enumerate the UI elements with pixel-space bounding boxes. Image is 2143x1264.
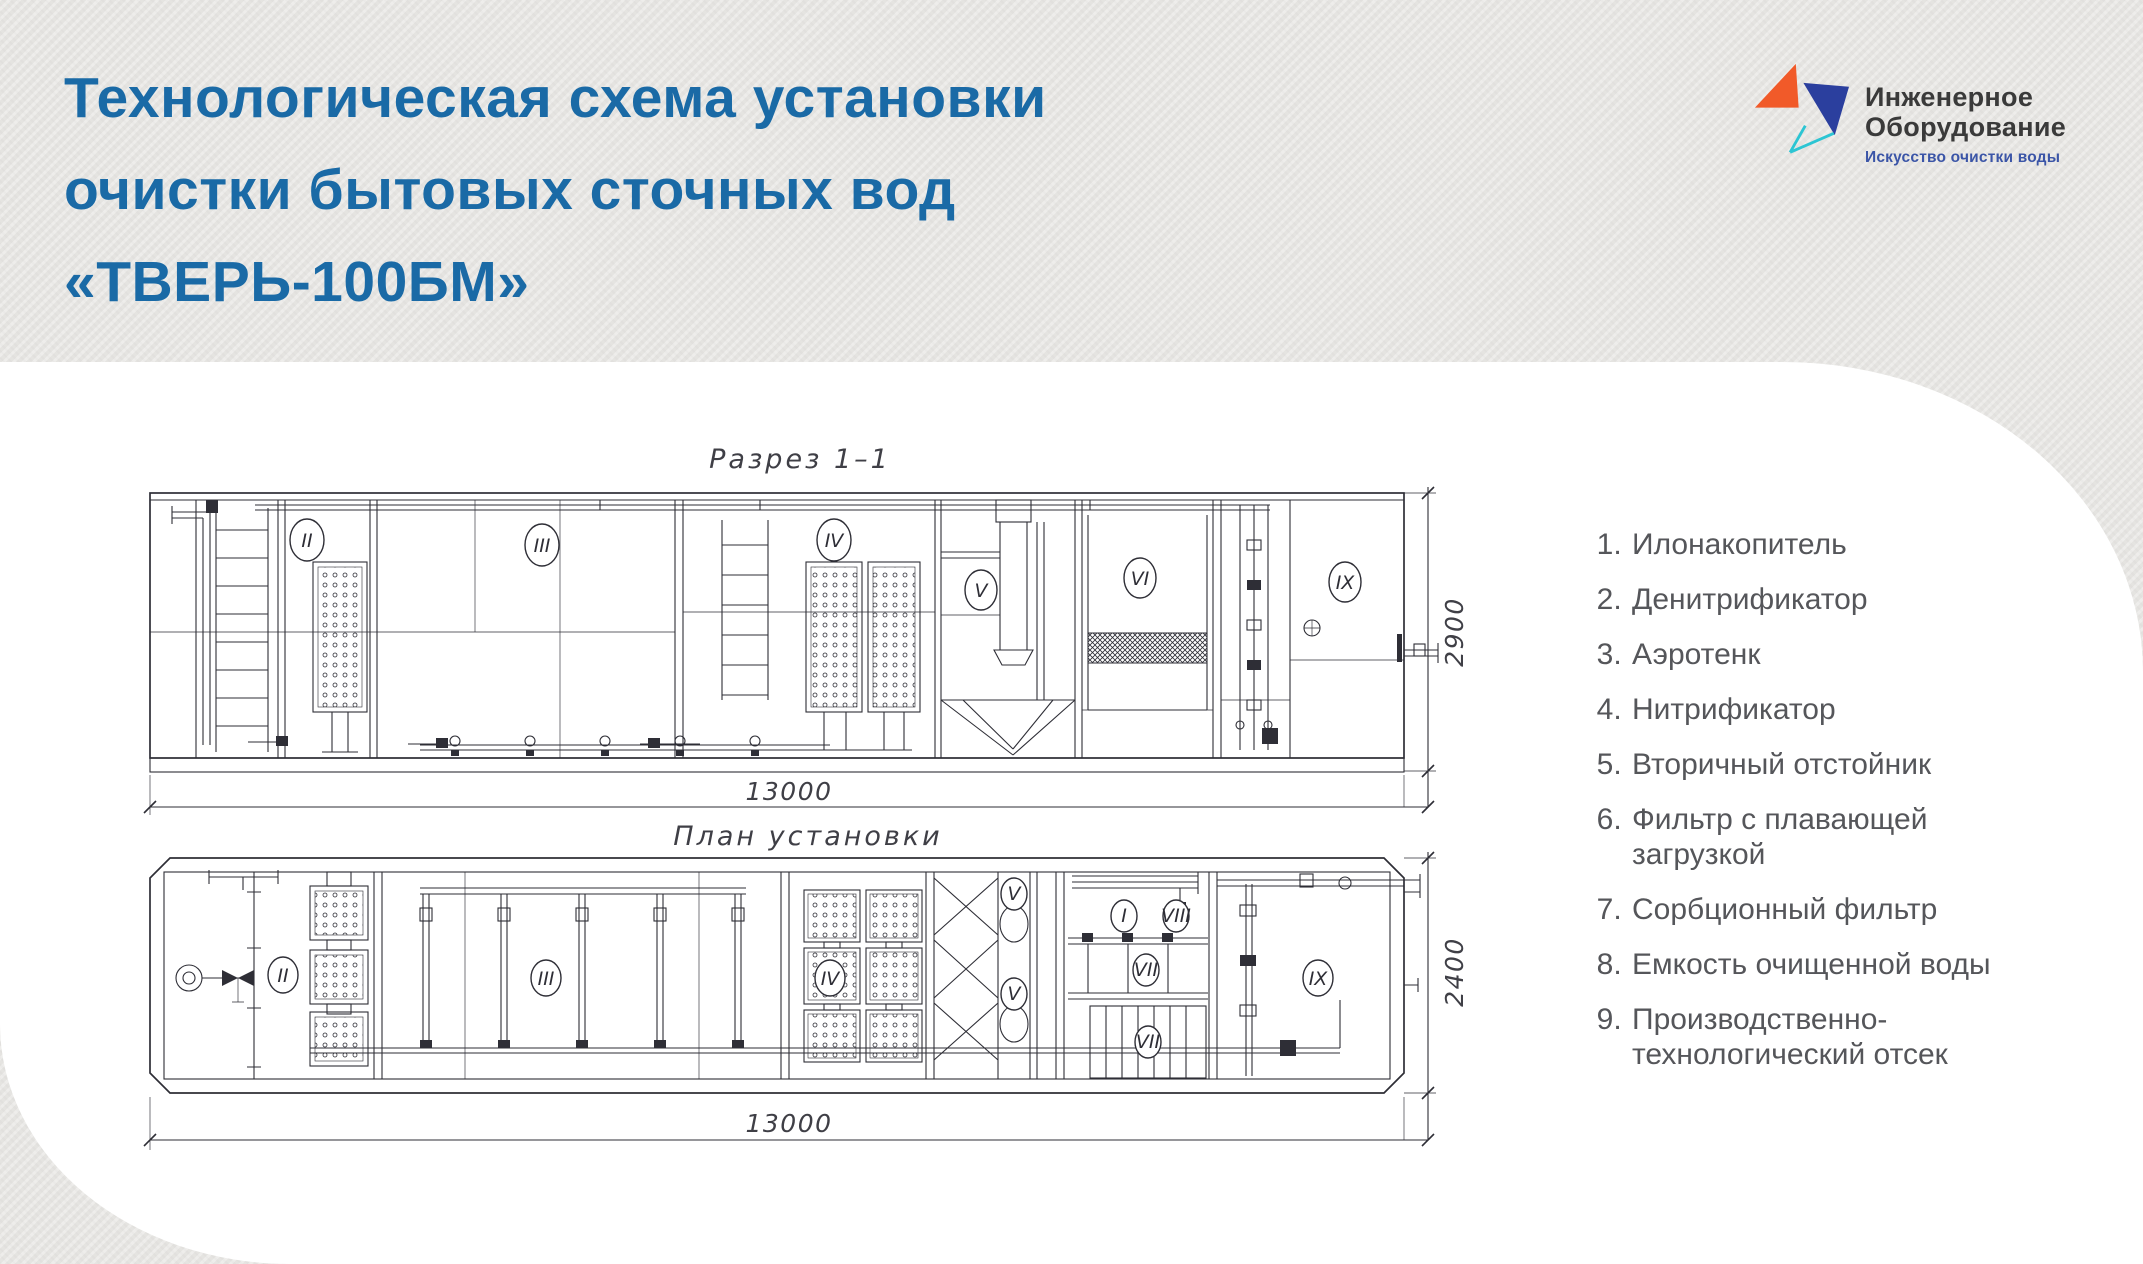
legend-item: Вторичный отстойник [1630,747,2013,782]
section-label: VI [1131,568,1150,590]
pipe-fittings [450,736,760,756]
legend-item: Производственно-технологический отсек [1630,1002,2013,1072]
plan-label: IV [821,968,842,990]
legend-item: Фильтр с плавающей загрузкой [1630,802,2013,872]
legend-item: Денитрификатор [1630,582,2013,617]
page-title-line: очистки бытовых сточных вод [64,144,1047,236]
logo-mark-icon [1754,60,1849,160]
page-title: Технологическая схема установки очистки … [64,52,1047,328]
section-label: V [975,580,990,602]
section-label: IX [1336,572,1356,594]
plan-label: II [277,965,289,987]
page-title-line: Технологическая схема установки [64,52,1047,144]
legend-list: Илонакопитель Денитрификатор Аэротенк Ни… [1583,527,2013,1092]
plan-label: V [1008,983,1023,1005]
legend-item: Аэротенк [1630,637,2013,672]
legend-item: Емкость очищенной воды [1630,947,2013,982]
plan-view-drawing: План установки [144,821,1469,1150]
company-logo: Инженерное Оборудование Искусство очистк… [1754,60,2066,167]
plan-label: I [1121,905,1127,927]
plan-aeration-pipes [420,894,744,1048]
plan-compartment-labels: II III IV V V I VIII VII VII IX [268,878,1333,1058]
logo-name-line2: Оборудование [1865,112,2066,142]
legend-item: Илонакопитель [1630,527,2013,562]
page-title-line: «ТВЕРЬ-100БМ» [64,236,1047,328]
logo-tagline: Искусство очистки воды [1865,149,2066,167]
plan-width-dim-text: 2400 [1440,937,1469,1007]
plan-label: VII [1136,1031,1161,1053]
slide: { "header": { "title_lines": [ "Технолог… [0,0,2143,1264]
section-label: II [301,530,313,552]
section-label: IV [825,530,846,552]
plan-length-dim-text: 13000 [745,1109,832,1138]
section-height-dim-text: 2900 [1440,597,1469,667]
plan-label: V [1008,883,1023,905]
plan-label: III [538,968,555,990]
logo-name-line1: Инженерное [1865,82,2066,112]
section-length-dimension: 13000 [144,775,1434,815]
legend-item: Сорбционный фильтр [1630,892,2013,927]
plan-label: VII [1134,959,1159,981]
section-view-drawing: Разрез 1–1 [144,444,1469,815]
section-length-dim-text: 13000 [745,777,832,806]
plan-length-dimension: 13000 [144,1097,1434,1150]
section-label: III [534,535,551,557]
plan-view-title: План установки [673,821,942,852]
plan-label: IX [1309,968,1329,990]
plan-width-dimension: 2400 [1404,852,1469,1140]
logo-text: Инженерное Оборудование Искусство очистк… [1865,60,2066,167]
legend-item: Нитрификатор [1630,692,2013,727]
section-view-title: Разрез 1–1 [709,444,891,475]
plan-filter-column [310,872,368,1066]
plan-label: VIII [1161,905,1191,927]
